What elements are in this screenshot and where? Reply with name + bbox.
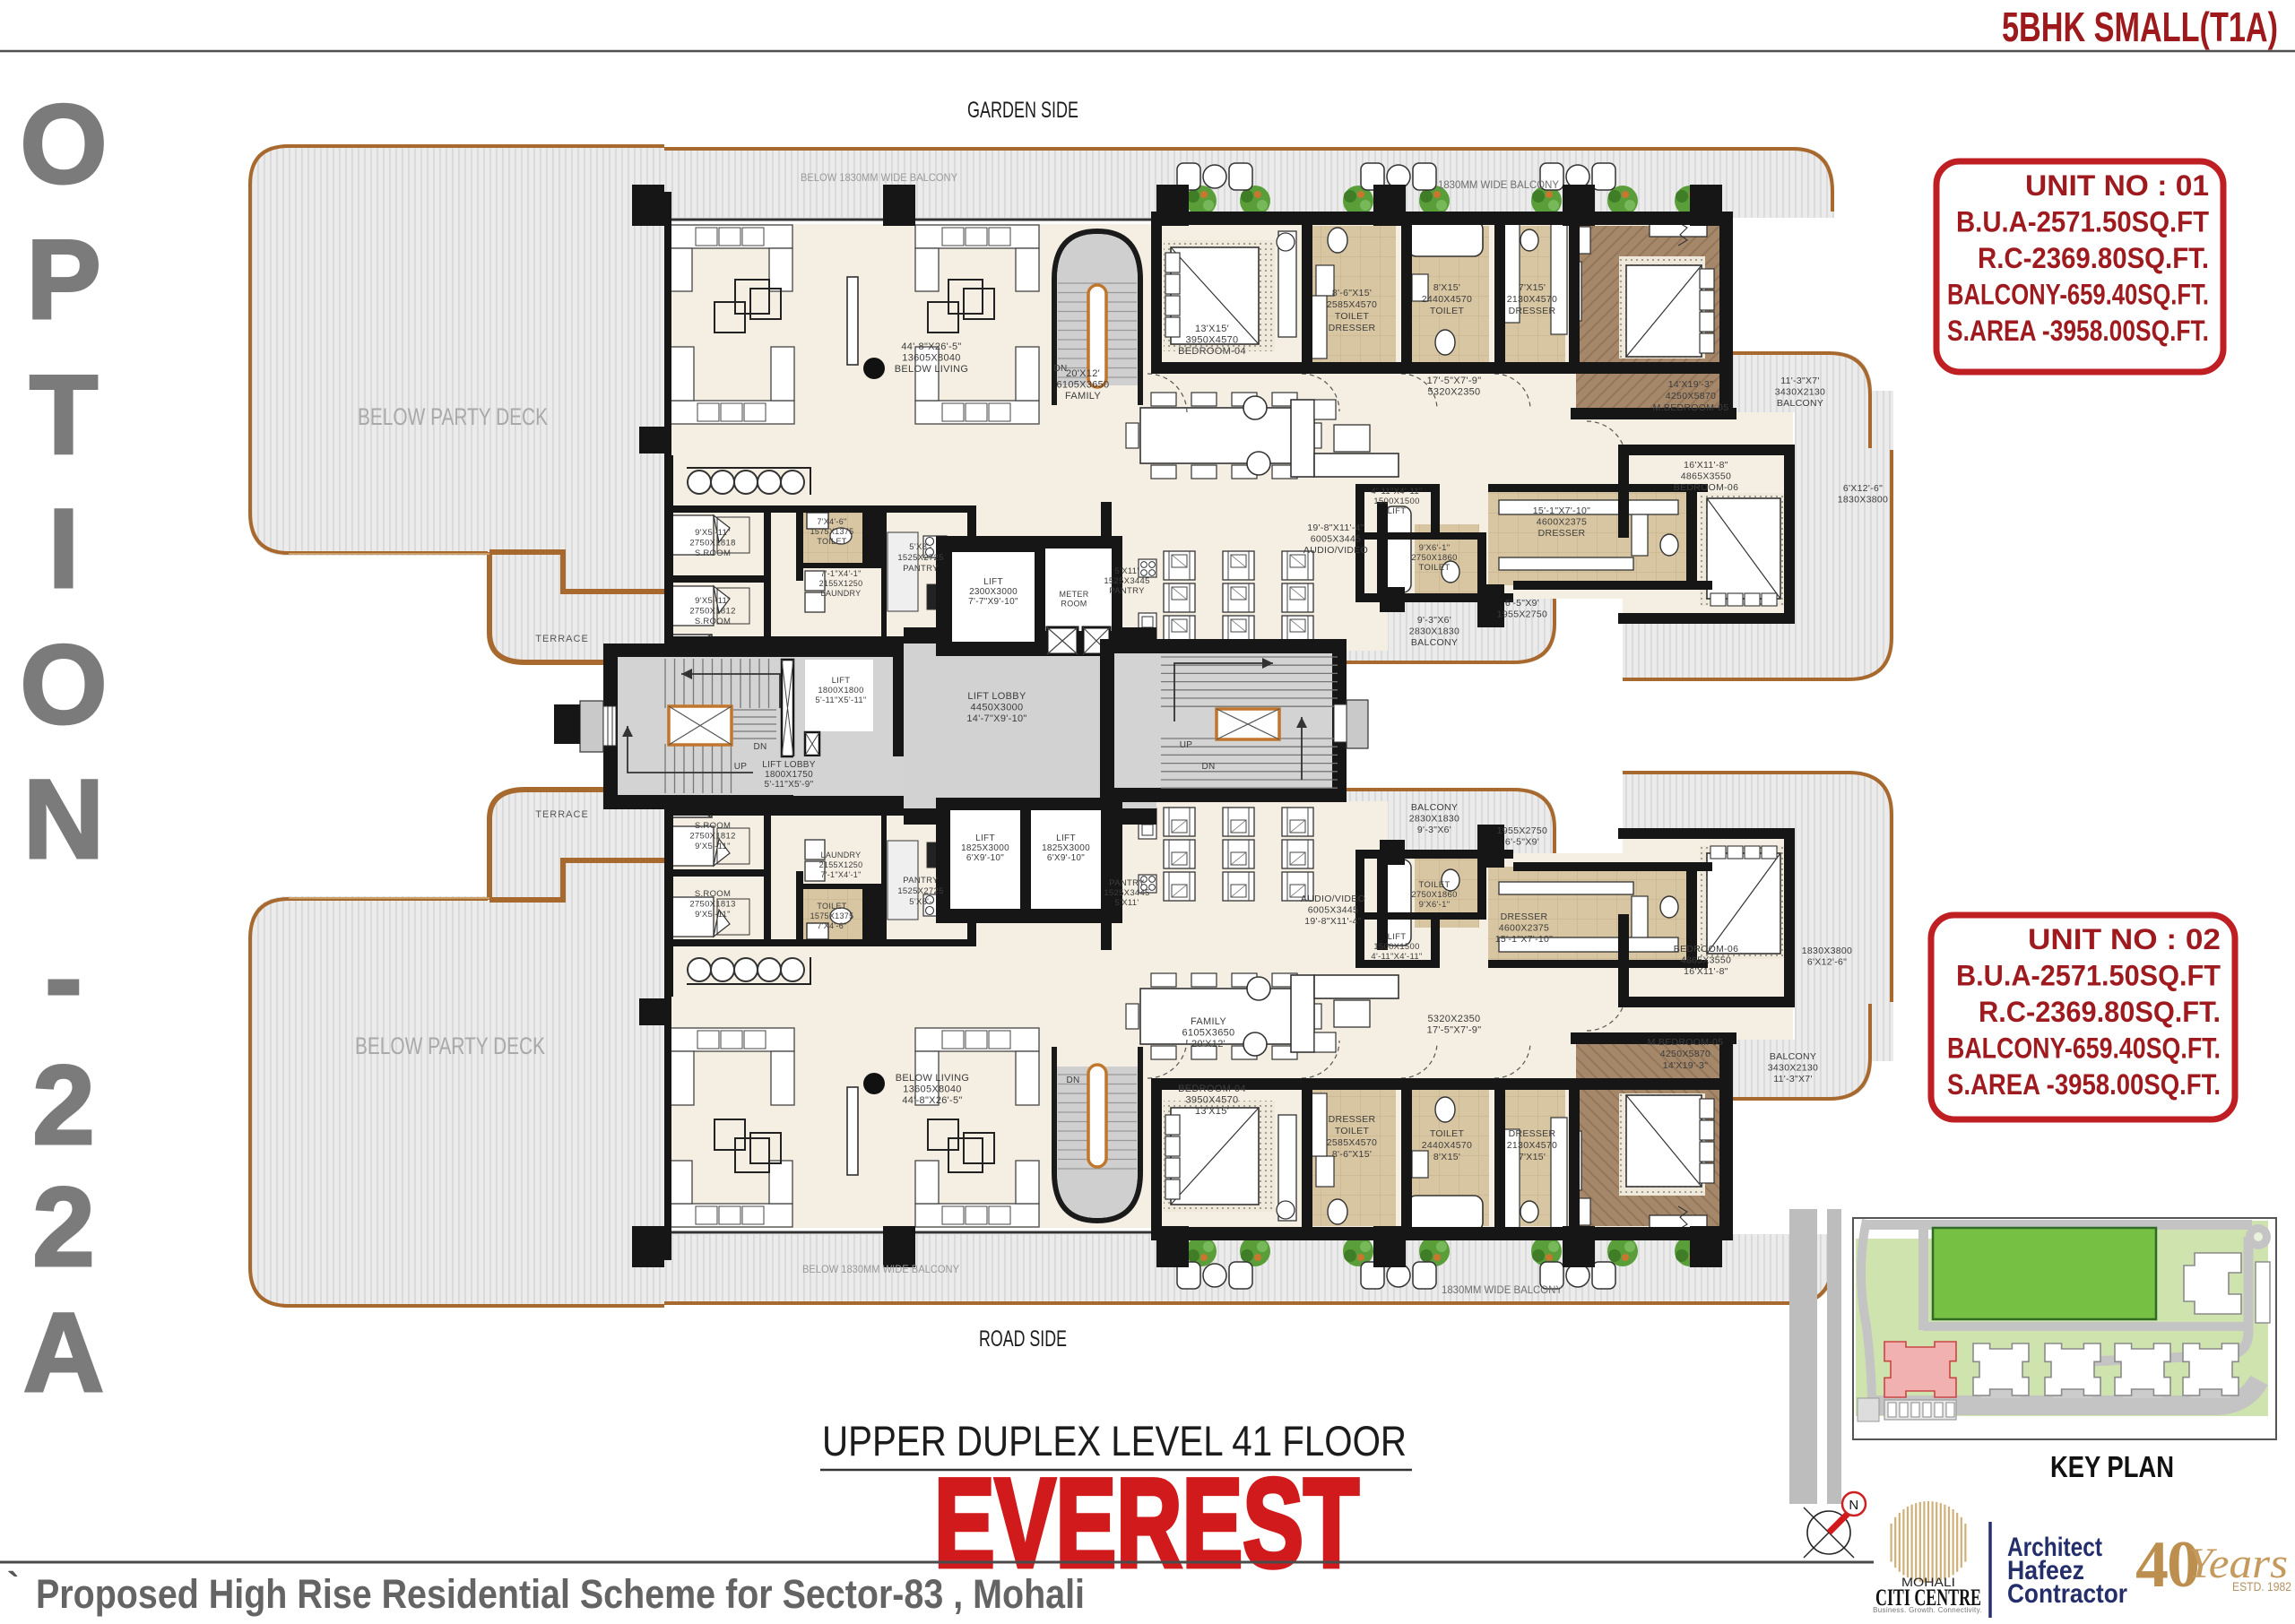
- svg-text:AUDIO/VIDEO: AUDIO/VIDEO: [1303, 545, 1368, 556]
- svg-text:LIFT: LIFT: [832, 676, 851, 686]
- svg-text:TOILET: TOILET: [1335, 311, 1370, 322]
- svg-text:44'-8"X26'-5": 44'-8"X26'-5": [901, 341, 961, 352]
- svg-text:1500X1500: 1500X1500: [1373, 942, 1419, 952]
- svg-text:14'X19'-3": 14'X19'-3": [1668, 379, 1713, 390]
- svg-text:DRESSER: DRESSER: [1501, 911, 1548, 922]
- svg-text:2440X4570: 2440X4570: [1422, 1140, 1472, 1151]
- svg-text:5320X2350: 5320X2350: [1428, 1014, 1481, 1024]
- svg-text:BALCONY: BALCONY: [1770, 1051, 1816, 1062]
- svg-text:1830X3800: 1830X3800: [1838, 495, 1888, 505]
- svg-text:Proposed High Rise Residential: Proposed High Rise Residential Scheme fo…: [36, 1571, 1085, 1617]
- svg-text:5'-11"X5'-11": 5'-11"X5'-11": [815, 695, 866, 705]
- svg-text:2130X4570: 2130X4570: [1507, 294, 1557, 305]
- svg-text:FAMILY: FAMILY: [1191, 1016, 1226, 1027]
- svg-text:DN: DN: [1053, 364, 1067, 374]
- svg-text:TOILET: TOILET: [1430, 306, 1465, 316]
- svg-text:BELOW PARTY DECK: BELOW PARTY DECK: [358, 403, 548, 430]
- svg-text:6005X3445: 6005X3445: [1311, 534, 1361, 545]
- svg-text:4450X3000: 4450X3000: [971, 703, 1024, 713]
- svg-text:DRESSER: DRESSER: [1329, 323, 1376, 333]
- svg-text:6'X12'-6": 6'X12'-6": [1807, 957, 1847, 968]
- svg-text:7'-1"X4'-1": 7'-1"X4'-1": [820, 569, 861, 578]
- svg-text:TERRACE: TERRACE: [535, 809, 589, 820]
- svg-text:B.U.A-2571.50SQ.FT: B.U.A-2571.50SQ.FT: [1956, 206, 2209, 238]
- svg-text:DRESSER: DRESSER: [1538, 528, 1586, 539]
- svg-text:A: A: [23, 1291, 104, 1415]
- svg-text:LIFT: LIFT: [983, 577, 1003, 587]
- svg-text:9'-3"X6': 9'-3"X6': [1417, 615, 1451, 626]
- svg-text:16'X11'-8": 16'X11'-8": [1684, 966, 1728, 977]
- svg-text:2585X4570: 2585X4570: [1327, 1137, 1377, 1148]
- svg-text:6105X3650: 6105X3650: [1057, 380, 1110, 391]
- svg-text:8'X15': 8'X15': [1433, 1152, 1460, 1162]
- svg-text:4865X3550: 4865X3550: [1681, 471, 1731, 482]
- svg-text:7'X4'-6": 7'X4'-6": [817, 921, 846, 930]
- svg-text:R.C-2369.80SQ.FT.: R.C-2369.80SQ.FT.: [1979, 996, 2221, 1028]
- svg-text:8'-6"X15': 8'-6"X15': [1332, 1149, 1372, 1160]
- svg-text:9'X5'-11": 9'X5'-11": [695, 910, 731, 920]
- svg-text:5'X8'-: 5'X8'-: [909, 542, 932, 552]
- svg-text:DRESSER: DRESSER: [1329, 1114, 1376, 1125]
- svg-text:1800X1750: 1800X1750: [765, 770, 813, 780]
- svg-text:7'-1"X4'-1": 7'-1"X4'-1": [820, 870, 861, 879]
- svg-text:BEDROOM-04: BEDROOM-04: [1178, 1084, 1246, 1094]
- svg-text:S.ROOM: S.ROOM: [695, 549, 731, 558]
- svg-text:9'X5'-11": 9'X5'-11": [695, 842, 731, 851]
- svg-text:1830MM WIDE BALCONY: 1830MM WIDE BALCONY: [1438, 178, 1559, 191]
- svg-text:9'X5'-11": 9'X5'-11": [695, 528, 731, 538]
- svg-text:11'-3"X7': 11'-3"X7': [1773, 1074, 1813, 1084]
- svg-text:UNIT NO : 02: UNIT NO : 02: [2028, 923, 2221, 955]
- svg-text:KEY PLAN: KEY PLAN: [2050, 1450, 2174, 1483]
- svg-text:1525X2725: 1525X2725: [897, 553, 943, 563]
- svg-text:4'-11"X4'-11": 4'-11"X4'-11": [1371, 952, 1422, 962]
- svg-text:TOILET: TOILET: [817, 537, 846, 546]
- svg-text:METER: METER: [1060, 590, 1089, 599]
- svg-text:M.BEDROOM-05: M.BEDROOM-05: [1648, 1037, 1724, 1048]
- svg-text:S.AREA -3958.00SQ.FT.: S.AREA -3958.00SQ.FT.: [1947, 315, 2209, 347]
- svg-text:1575X1375: 1575X1375: [810, 911, 854, 920]
- svg-text:S.AREA -3958.00SQ.FT.: S.AREA -3958.00SQ.FT.: [1947, 1068, 2221, 1101]
- svg-text:DN: DN: [1201, 762, 1215, 772]
- svg-text:2: 2: [32, 1043, 95, 1168]
- svg-text:BALCONY-659.40SQ.FT.: BALCONY-659.40SQ.FT.: [1947, 279, 2209, 311]
- svg-text:19'-8"X11'-4": 19'-8"X11'-4": [1307, 523, 1364, 533]
- svg-text:S.ROOM: S.ROOM: [695, 821, 731, 831]
- svg-text:7'X15': 7'X15': [1519, 1152, 1546, 1162]
- svg-text:2830X1830: 2830X1830: [1409, 814, 1459, 825]
- svg-text:S.ROOM: S.ROOM: [695, 889, 731, 899]
- svg-text:T: T: [30, 353, 98, 478]
- svg-text:20'X12': 20'X12': [1191, 1039, 1225, 1050]
- svg-text:3430X2130: 3430X2130: [1768, 1063, 1818, 1074]
- svg-text:O: O: [20, 623, 107, 747]
- svg-text:2155X1250: 2155X1250: [819, 860, 863, 869]
- svg-text:P: P: [26, 218, 100, 342]
- svg-text:17'-5"X7'-9": 17'-5"X7'-9": [1427, 1025, 1482, 1036]
- svg-text:7'X4'-6": 7'X4'-6": [817, 517, 846, 526]
- svg-text:6105X3650: 6105X3650: [1182, 1028, 1235, 1039]
- svg-text:6'-5"X9': 6'-5"X9': [1505, 837, 1539, 848]
- svg-text:16'X11'-8": 16'X11'-8": [1684, 460, 1728, 471]
- svg-text:BELOW LIVING: BELOW LIVING: [895, 364, 968, 375]
- svg-text:BEDROOM-04: BEDROOM-04: [1178, 346, 1246, 357]
- svg-text:4865X3550: 4865X3550: [1681, 955, 1731, 966]
- svg-text:TOILET: TOILET: [817, 902, 846, 911]
- svg-text:13'X15': 13'X15': [1195, 1106, 1229, 1117]
- svg-text:2750X1860: 2750X1860: [1411, 890, 1457, 900]
- svg-text:BELOW 1830MM WIDE BALCONY: BELOW 1830MM WIDE BALCONY: [801, 171, 957, 184]
- svg-text:5'-11"X5'-9": 5'-11"X5'-9": [765, 780, 814, 790]
- svg-text:6'X9'-10": 6'X9'-10": [1047, 853, 1085, 863]
- svg-text:1955X2750: 1955X2750: [1497, 825, 1547, 836]
- svg-text:ESTD. 1982: ESTD. 1982: [2232, 1579, 2291, 1594]
- svg-text:5'X11': 5'X11': [1115, 566, 1139, 576]
- svg-text:FAMILY: FAMILY: [1065, 391, 1101, 402]
- svg-text:2: 2: [32, 1165, 95, 1290]
- svg-text:O: O: [20, 82, 107, 207]
- svg-text:BALCONY: BALCONY: [1411, 637, 1458, 648]
- svg-text:3950X4570: 3950X4570: [1186, 335, 1239, 346]
- svg-text:2750X1812: 2750X1812: [689, 832, 735, 842]
- svg-text:6'X12'-6": 6'X12'-6": [1843, 483, 1883, 494]
- svg-text:1825X3000: 1825X3000: [961, 843, 1009, 853]
- svg-text:R.C-2369.80SQ.FT.: R.C-2369.80SQ.FT.: [1978, 242, 2209, 274]
- svg-text:5'X8'-: 5'X8'-: [909, 897, 932, 907]
- svg-text:TOILET: TOILET: [1419, 880, 1451, 890]
- svg-text:LAUNDRY: LAUNDRY: [821, 851, 862, 860]
- svg-text:DRESSER: DRESSER: [1509, 306, 1556, 316]
- svg-text:1830MM WIDE BALCONY: 1830MM WIDE BALCONY: [1442, 1283, 1563, 1296]
- svg-text:TOILET: TOILET: [1335, 1126, 1370, 1136]
- svg-text:UNIT NO : 01: UNIT NO : 01: [2025, 169, 2209, 202]
- svg-text:6'-5"X9': 6'-5"X9': [1505, 598, 1539, 609]
- svg-text:LAUNDRY: LAUNDRY: [821, 589, 862, 598]
- svg-text:Business. Growth. Connectivity: Business. Growth. Connectivity.: [1873, 1606, 1982, 1614]
- svg-text:DRESSER: DRESSER: [1509, 1128, 1556, 1139]
- svg-text:1525X3445: 1525X3445: [1104, 576, 1149, 586]
- svg-text:13'X15': 13'X15': [1195, 324, 1229, 334]
- svg-text:BEDROOM-06: BEDROOM-06: [1674, 482, 1738, 493]
- svg-text:2750X1812: 2750X1812: [689, 607, 735, 617]
- svg-text:1525X2725: 1525X2725: [897, 886, 943, 896]
- svg-text:15'-1"X7'-10": 15'-1"X7'-10": [1495, 934, 1553, 945]
- svg-text:2155X1250: 2155X1250: [819, 579, 863, 588]
- svg-text:2750X1818: 2750X1818: [689, 539, 735, 549]
- svg-text:1825X3000: 1825X3000: [1042, 843, 1090, 853]
- svg-text:BELOW LIVING: BELOW LIVING: [896, 1073, 969, 1084]
- svg-text:BALCONY-659.40SQ.FT.: BALCONY-659.40SQ.FT.: [1947, 1032, 2221, 1065]
- svg-text:UP: UP: [1180, 740, 1193, 750]
- svg-text:LIFT: LIFT: [1388, 932, 1407, 942]
- svg-text:N: N: [1849, 1498, 1858, 1513]
- svg-text:GARDEN SIDE: GARDEN SIDE: [967, 98, 1078, 123]
- svg-text:`: `: [7, 1566, 20, 1605]
- svg-text:9'X5'-11": 9'X5'-11": [695, 596, 731, 606]
- svg-text:11'-3"X7': 11'-3"X7': [1780, 376, 1820, 386]
- svg-text:2750X1860: 2750X1860: [1411, 553, 1457, 563]
- svg-text:LIFT: LIFT: [1056, 834, 1076, 843]
- svg-text:S.ROOM: S.ROOM: [695, 617, 731, 626]
- svg-text:LIFT: LIFT: [1388, 506, 1407, 516]
- svg-text:ROAD SIDE: ROAD SIDE: [979, 1326, 1067, 1352]
- svg-text:1500X1500: 1500X1500: [1373, 497, 1419, 506]
- svg-text:19'-8"X11'-4": 19'-8"X11'-4": [1304, 916, 1362, 927]
- svg-text:5BHK SMALL(T1A): 5BHK SMALL(T1A): [2002, 4, 2278, 50]
- svg-text:BEDROOM-06: BEDROOM-06: [1674, 944, 1738, 955]
- svg-text:13605X8040: 13605X8040: [903, 1084, 961, 1095]
- svg-text:2300X3000: 2300X3000: [969, 587, 1018, 597]
- svg-text:-: -: [45, 916, 82, 1041]
- svg-text:7'-7"X9'-10": 7'-7"X9'-10": [968, 597, 1018, 607]
- svg-text:1525X3445: 1525X3445: [1104, 888, 1149, 898]
- svg-text:7'X15': 7'X15': [1519, 282, 1546, 293]
- svg-text:TOILET: TOILET: [1430, 1128, 1465, 1139]
- svg-text:9'X6'-1": 9'X6'-1": [1419, 543, 1451, 553]
- svg-text:LIFT LOBBY: LIFT LOBBY: [967, 691, 1026, 702]
- svg-text:1955X2750: 1955X2750: [1497, 609, 1547, 620]
- svg-text:6005X3445: 6005X3445: [1308, 905, 1358, 916]
- svg-text:DN: DN: [753, 742, 766, 752]
- svg-text:BELOW PARTY DECK: BELOW PARTY DECK: [355, 1032, 545, 1059]
- svg-text:N: N: [23, 757, 104, 882]
- svg-text:AUDIO/VIDEO: AUDIO/VIDEO: [1301, 894, 1365, 904]
- svg-text:PANTRY: PANTRY: [1109, 878, 1145, 888]
- svg-text:13605X8040: 13605X8040: [902, 353, 960, 364]
- svg-text:BELOW 1830MM WIDE BALCONY: BELOW 1830MM WIDE BALCONY: [802, 1263, 959, 1275]
- svg-text:1800X1800: 1800X1800: [818, 686, 863, 695]
- svg-text:PANTRY: PANTRY: [903, 564, 939, 574]
- svg-text:4250X5870: 4250X5870: [1660, 1049, 1710, 1059]
- svg-text:PANTRY: PANTRY: [1109, 586, 1145, 596]
- svg-text:8'X15': 8'X15': [1433, 282, 1460, 293]
- svg-text:LIFT LOBBY: LIFT LOBBY: [762, 760, 816, 770]
- svg-text:44'-8"X26'-5": 44'-8"X26'-5": [902, 1095, 962, 1106]
- svg-text:3430X2130: 3430X2130: [1775, 387, 1825, 398]
- svg-text:TOILET: TOILET: [1419, 563, 1451, 573]
- svg-text:LIFT: LIFT: [975, 834, 995, 843]
- svg-text:6'X9'-10": 6'X9'-10": [966, 853, 1004, 863]
- svg-text:3950X4570: 3950X4570: [1186, 1095, 1239, 1106]
- svg-text:1830X3800: 1830X3800: [1802, 946, 1852, 956]
- svg-text:B.U.A-2571.50SQ.FT: B.U.A-2571.50SQ.FT: [1956, 960, 2221, 992]
- svg-text:8'-6"X15': 8'-6"X15': [1332, 288, 1372, 298]
- svg-text:14'-7"X9'-10": 14'-7"X9'-10": [966, 713, 1026, 724]
- svg-text:1575X1375: 1575X1375: [810, 527, 854, 536]
- svg-text:UP: UP: [734, 762, 748, 772]
- svg-text:20'X12': 20'X12': [1066, 368, 1100, 379]
- svg-text:M.BEDROOM-05: M.BEDROOM-05: [1653, 402, 1729, 413]
- svg-text:2440X4570: 2440X4570: [1422, 294, 1472, 305]
- svg-text:DN: DN: [1066, 1075, 1079, 1085]
- svg-text:5320X2350: 5320X2350: [1428, 387, 1481, 398]
- svg-text:2130X4570: 2130X4570: [1507, 1140, 1557, 1151]
- svg-text:2750X1813: 2750X1813: [689, 900, 735, 910]
- svg-text:5'X11': 5'X11': [1115, 898, 1139, 908]
- svg-text:2585X4570: 2585X4570: [1327, 299, 1377, 310]
- svg-text:4250X5870: 4250X5870: [1666, 391, 1716, 402]
- svg-text:9'-3"X6': 9'-3"X6': [1417, 825, 1451, 835]
- svg-text:BALCONY: BALCONY: [1777, 398, 1823, 409]
- svg-text:15'-1"X7'-10": 15'-1"X7'-10": [1533, 505, 1590, 516]
- svg-text:ROOM: ROOM: [1061, 600, 1087, 609]
- svg-text:PANTRY: PANTRY: [903, 876, 939, 885]
- svg-text:14'X19'-3": 14'X19'-3": [1663, 1060, 1708, 1071]
- svg-text:17'-5"X7'-9": 17'-5"X7'-9": [1427, 376, 1482, 386]
- svg-text:4'-11"X4'-11": 4'-11"X4'-11": [1371, 487, 1422, 497]
- svg-text:Contractor: Contractor: [2007, 1579, 2127, 1609]
- svg-text:9'X6'-1": 9'X6'-1": [1419, 900, 1451, 910]
- svg-text:I: I: [48, 487, 80, 611]
- svg-text:4600X2375: 4600X2375: [1499, 923, 1549, 934]
- svg-text:BALCONY: BALCONY: [1411, 802, 1458, 813]
- svg-text:4600X2375: 4600X2375: [1537, 517, 1587, 528]
- svg-text:2830X1830: 2830X1830: [1409, 626, 1459, 637]
- svg-text:TERRACE: TERRACE: [535, 634, 589, 644]
